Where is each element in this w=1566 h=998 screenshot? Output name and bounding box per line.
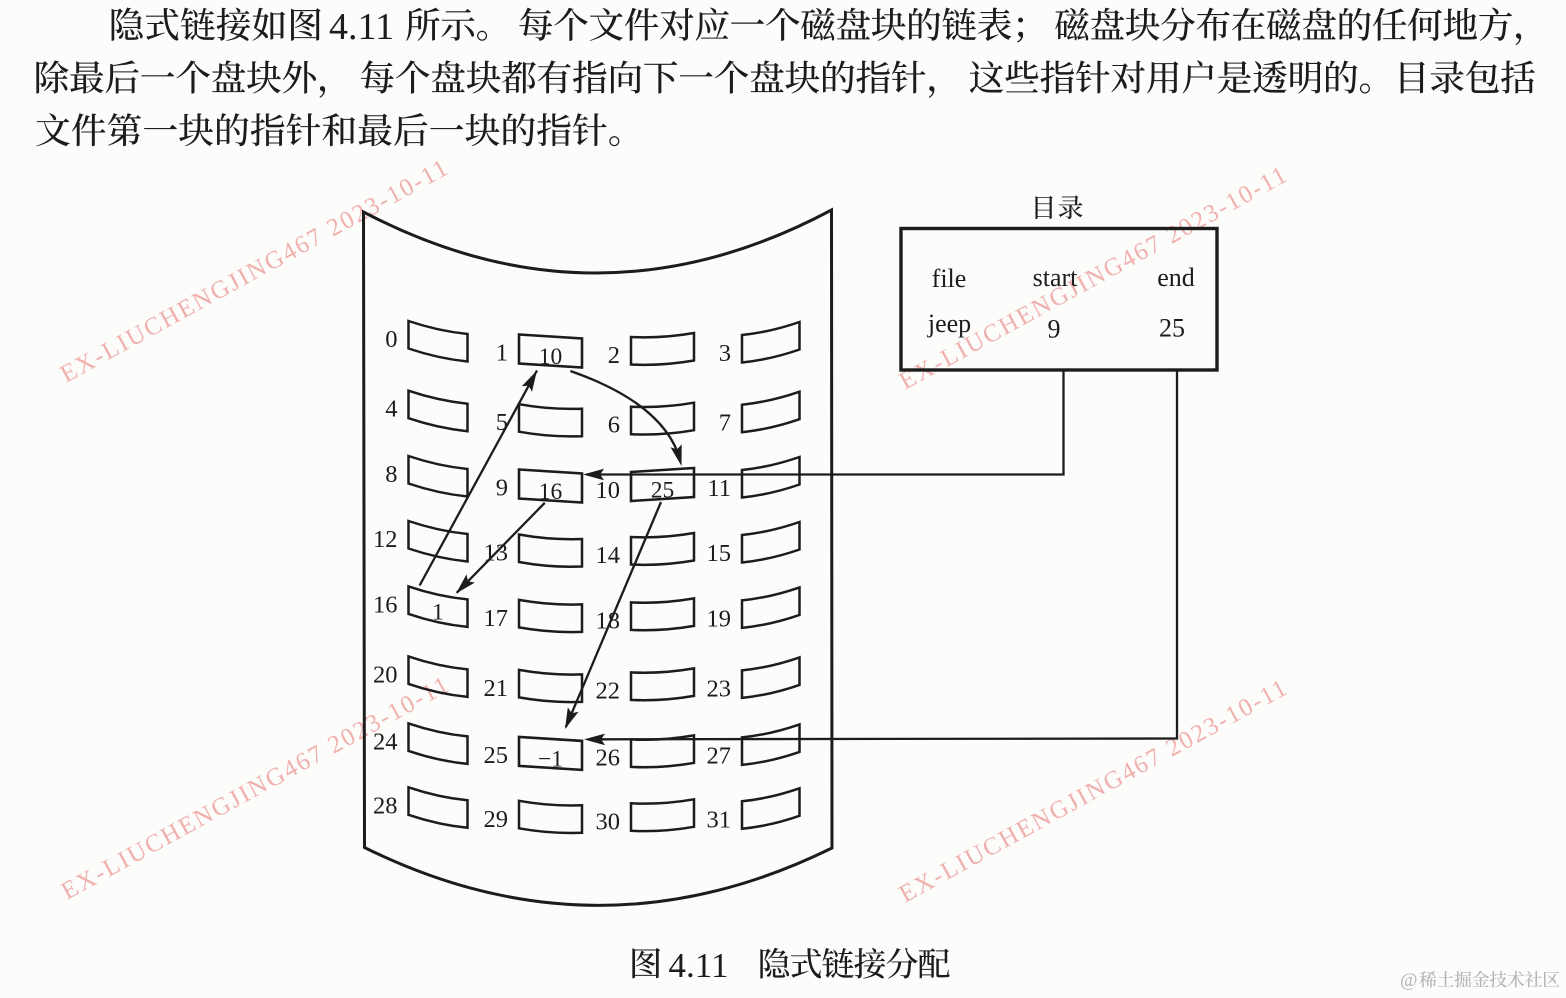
svg-text:15: 15: [707, 540, 732, 567]
svg-text:start: start: [1033, 263, 1079, 292]
svg-text:30: 30: [596, 808, 621, 835]
svg-text:29: 29: [484, 806, 509, 833]
svg-text:0: 0: [385, 326, 397, 353]
svg-text:21: 21: [484, 675, 509, 702]
svg-text:−1: −1: [538, 746, 563, 772]
svg-text:25: 25: [651, 478, 675, 504]
svg-text:25: 25: [1159, 314, 1185, 343]
svg-text:22: 22: [596, 677, 621, 704]
svg-text:12: 12: [373, 526, 398, 553]
svg-text:8: 8: [385, 461, 397, 488]
svg-text:@: @: [1400, 970, 1418, 991]
svg-text:10: 10: [596, 477, 621, 504]
svg-text:20: 20: [373, 661, 398, 688]
svg-text:1: 1: [496, 340, 508, 367]
svg-text:end: end: [1157, 263, 1195, 292]
svg-text:31: 31: [707, 806, 732, 833]
svg-text:6: 6: [608, 412, 620, 439]
svg-text:16: 16: [373, 591, 398, 618]
svg-text:9: 9: [496, 475, 508, 502]
svg-text:14: 14: [596, 542, 621, 569]
svg-text:5: 5: [496, 409, 508, 436]
svg-text:23: 23: [707, 675, 732, 702]
svg-text:10: 10: [539, 344, 563, 370]
svg-text:3: 3: [719, 340, 731, 367]
svg-text:11: 11: [707, 475, 731, 502]
svg-text:16: 16: [539, 479, 563, 505]
svg-text:1: 1: [432, 600, 444, 626]
svg-text:jeep: jeep: [927, 309, 971, 338]
svg-text:4.11: 4.11: [329, 6, 394, 48]
svg-text:9: 9: [1048, 315, 1061, 344]
svg-text:25: 25: [484, 742, 509, 769]
svg-text:26: 26: [596, 744, 621, 771]
svg-text:7: 7: [719, 410, 731, 437]
svg-text:4: 4: [385, 396, 397, 423]
svg-text:27: 27: [707, 742, 732, 769]
svg-text:19: 19: [707, 605, 732, 632]
svg-text:file: file: [932, 264, 967, 293]
svg-text:28: 28: [373, 792, 398, 819]
svg-text:4.11: 4.11: [669, 946, 729, 985]
svg-text:24: 24: [373, 728, 398, 755]
svg-text:2: 2: [608, 342, 620, 369]
svg-text:17: 17: [484, 605, 509, 632]
